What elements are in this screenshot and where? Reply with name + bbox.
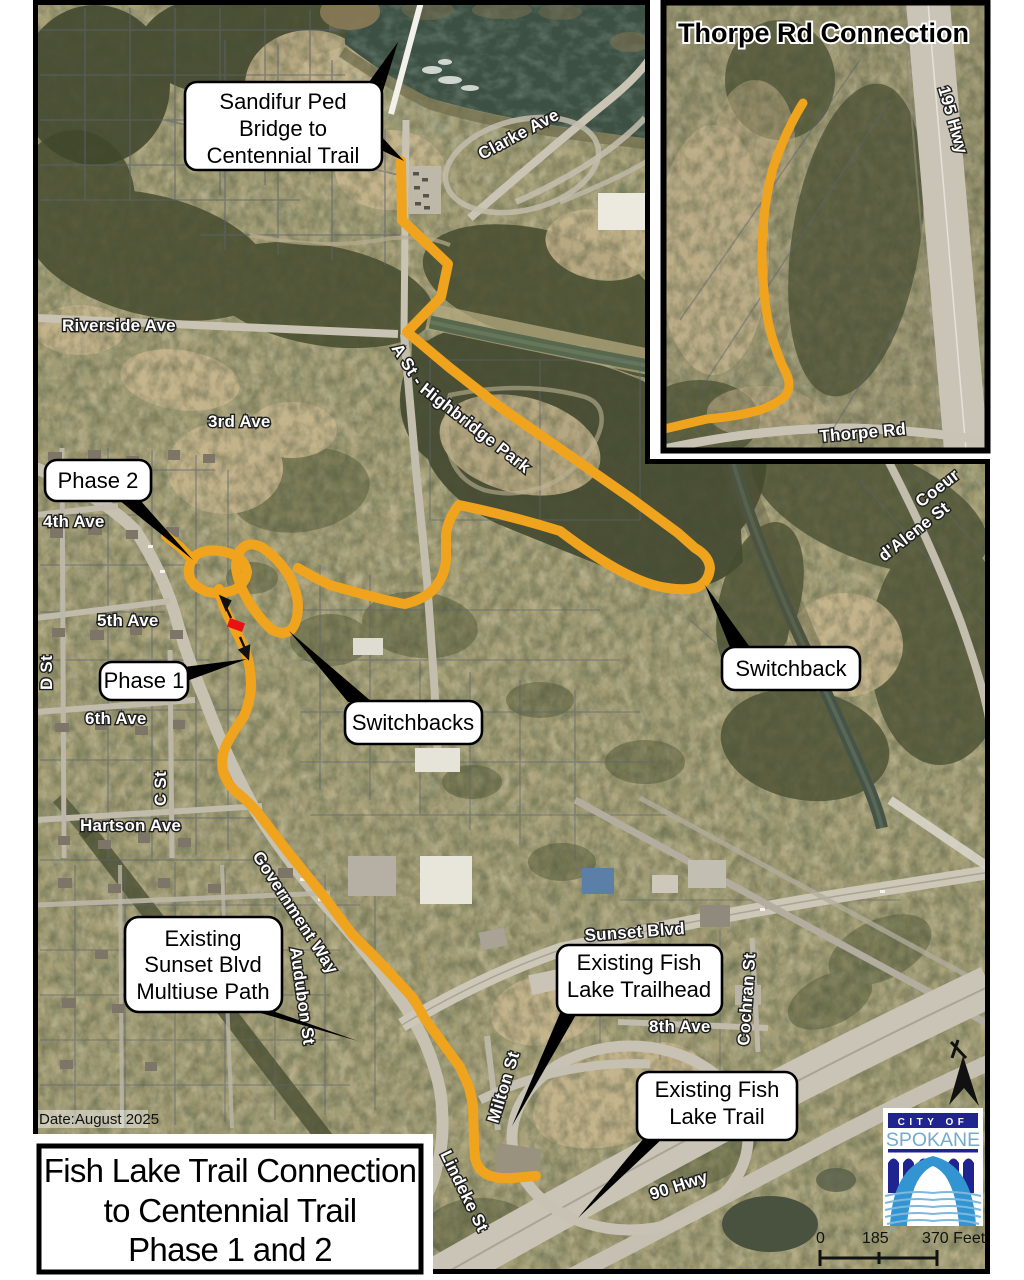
svg-text:Sandifur Ped: Sandifur Ped	[219, 89, 346, 114]
svg-text:Existing Fish: Existing Fish	[655, 1077, 780, 1102]
svg-text:C St: C St	[151, 771, 170, 806]
svg-text:Lake Trail: Lake Trail	[669, 1104, 764, 1129]
svg-text:SPOKANE: SPOKANE	[886, 1129, 980, 1151]
svg-text:to Centennial Trail: to Centennial Trail	[104, 1192, 357, 1229]
svg-text:D St: D St	[37, 655, 56, 690]
svg-text:Phase 2: Phase 2	[58, 468, 139, 493]
svg-text:3rd Ave: 3rd Ave	[208, 412, 271, 431]
svg-text:Riverside Ave: Riverside Ave	[62, 316, 176, 335]
svg-text:370 Feet: 370 Feet	[922, 1230, 986, 1247]
svg-text:CITY OF: CITY OF	[898, 1117, 969, 1128]
svg-text:Existing Fish: Existing Fish	[577, 950, 702, 975]
svg-text:Switchbacks: Switchbacks	[352, 710, 474, 735]
svg-text:Date:August 2025: Date:August 2025	[39, 1111, 159, 1128]
svg-text:0: 0	[816, 1230, 825, 1247]
svg-text:8th Ave: 8th Ave	[649, 1017, 711, 1036]
svg-text:Phase 1: Phase 1	[104, 668, 185, 693]
svg-text:Phase 1 and 2: Phase 1 and 2	[128, 1231, 332, 1268]
svg-text:Fish Lake Trail Connection: Fish Lake Trail Connection	[44, 1152, 417, 1189]
svg-text:Centennial Trail: Centennial Trail	[207, 143, 360, 168]
svg-text:4th Ave: 4th Ave	[43, 512, 105, 531]
svg-text:Lake Trailhead: Lake Trailhead	[567, 977, 711, 1002]
svg-text:Bridge to: Bridge to	[239, 116, 327, 141]
svg-text:6th Ave: 6th Ave	[85, 709, 147, 728]
svg-text:Existing: Existing	[164, 926, 241, 951]
svg-text:185: 185	[862, 1230, 889, 1247]
svg-text:Hartson Ave: Hartson Ave	[80, 816, 181, 835]
svg-text:Multiuse Path: Multiuse Path	[136, 979, 269, 1004]
svg-text:5th Ave: 5th Ave	[97, 611, 159, 630]
svg-text:Thorpe Rd Connection: Thorpe Rd Connection	[678, 18, 969, 48]
svg-text:Sunset Blvd: Sunset Blvd	[144, 952, 261, 977]
svg-text:Switchback: Switchback	[735, 656, 847, 681]
